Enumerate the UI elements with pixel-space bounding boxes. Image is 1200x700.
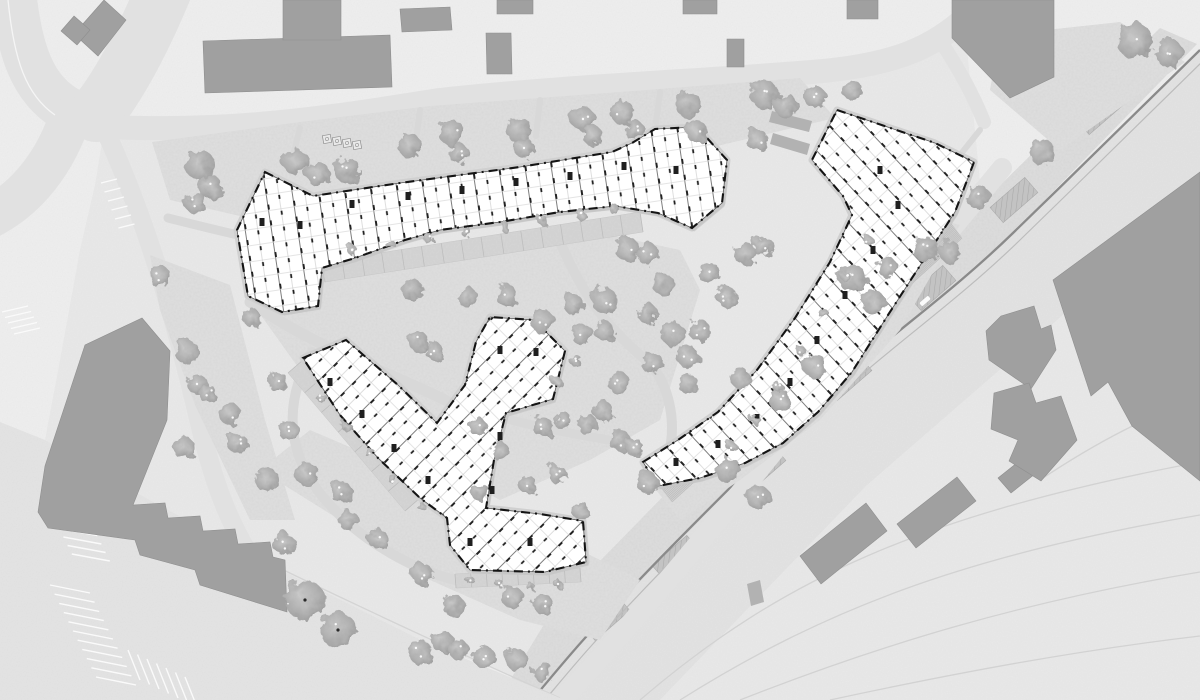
tree bbox=[273, 533, 295, 555]
tree bbox=[615, 237, 639, 261]
tree bbox=[227, 433, 247, 453]
shrub bbox=[727, 442, 737, 452]
tree bbox=[638, 304, 658, 324]
stair-core bbox=[716, 440, 721, 448]
tree bbox=[1155, 39, 1183, 67]
tree bbox=[675, 91, 701, 117]
tree bbox=[624, 120, 644, 140]
tree bbox=[408, 331, 428, 351]
tree bbox=[199, 385, 217, 403]
stair-core bbox=[498, 346, 503, 354]
tree bbox=[689, 320, 711, 342]
tree bbox=[283, 149, 309, 175]
tree bbox=[677, 346, 699, 368]
shrub bbox=[499, 221, 509, 231]
tree bbox=[401, 279, 423, 301]
shrub bbox=[365, 448, 375, 458]
tree bbox=[255, 468, 279, 492]
tree bbox=[715, 457, 741, 483]
tree bbox=[554, 412, 572, 430]
tree bbox=[548, 465, 566, 483]
tree bbox=[637, 243, 659, 265]
tree bbox=[563, 294, 583, 314]
tree bbox=[514, 138, 534, 158]
shrub bbox=[537, 215, 547, 225]
tree bbox=[173, 437, 195, 459]
tree bbox=[334, 157, 360, 183]
tree bbox=[425, 342, 443, 360]
tree bbox=[734, 243, 756, 265]
tree bbox=[175, 340, 199, 364]
stair-core bbox=[260, 218, 265, 226]
tree bbox=[571, 323, 593, 345]
shrub bbox=[554, 580, 562, 588]
tree bbox=[769, 389, 791, 411]
tree bbox=[804, 86, 826, 108]
stair-core bbox=[426, 476, 431, 484]
tree bbox=[519, 476, 537, 494]
stair-core bbox=[622, 162, 627, 170]
tree bbox=[457, 287, 477, 307]
site-plan bbox=[0, 0, 1200, 700]
shrub bbox=[750, 415, 760, 425]
tree bbox=[593, 401, 613, 421]
tree bbox=[185, 192, 207, 214]
tree bbox=[730, 368, 750, 388]
tree bbox=[803, 354, 827, 378]
tree bbox=[583, 126, 603, 146]
shrub bbox=[609, 204, 619, 214]
stair-core bbox=[360, 410, 365, 418]
tree bbox=[219, 403, 241, 425]
shrub bbox=[416, 501, 424, 509]
stair-core bbox=[896, 201, 901, 209]
tree bbox=[592, 288, 618, 314]
shrub bbox=[796, 346, 806, 356]
stair-core bbox=[568, 172, 573, 180]
context-building bbox=[203, 35, 392, 93]
stair-core bbox=[298, 221, 303, 229]
tree bbox=[571, 501, 589, 519]
tree bbox=[306, 162, 330, 186]
stair-core bbox=[674, 458, 679, 466]
tree bbox=[1029, 139, 1055, 165]
tree bbox=[268, 372, 288, 392]
tree bbox=[448, 639, 468, 659]
tree-trunk-dot bbox=[303, 598, 306, 601]
context-building bbox=[283, 0, 341, 40]
tree bbox=[471, 483, 489, 501]
tree bbox=[1117, 23, 1153, 59]
tree bbox=[753, 236, 773, 256]
shrub bbox=[841, 272, 851, 282]
tree bbox=[661, 322, 685, 346]
tree bbox=[411, 563, 433, 585]
stair-core bbox=[406, 192, 411, 200]
tree bbox=[149, 266, 171, 288]
tree bbox=[469, 418, 487, 436]
stair-core bbox=[460, 186, 465, 194]
stair-core bbox=[514, 178, 519, 186]
shrub bbox=[461, 227, 471, 237]
tree bbox=[330, 481, 352, 503]
footpath bbox=[656, 92, 660, 122]
tree bbox=[862, 291, 886, 315]
context-building bbox=[486, 33, 512, 74]
tree bbox=[699, 263, 721, 285]
tree bbox=[533, 662, 553, 682]
shrub bbox=[385, 239, 395, 249]
tree bbox=[491, 442, 509, 460]
stair-core bbox=[328, 378, 333, 386]
tree bbox=[439, 120, 465, 146]
shrub bbox=[863, 235, 873, 245]
tree bbox=[642, 353, 664, 375]
context-building bbox=[683, 0, 717, 14]
shrub bbox=[570, 355, 582, 367]
tree bbox=[842, 80, 862, 100]
tree bbox=[685, 120, 707, 142]
tree bbox=[652, 273, 674, 295]
tree bbox=[368, 529, 388, 549]
bike-rack bbox=[322, 134, 331, 143]
shrub bbox=[466, 576, 474, 584]
tree bbox=[577, 414, 597, 434]
site-plan-canvas bbox=[0, 0, 1200, 700]
tree bbox=[408, 640, 432, 664]
tree bbox=[610, 100, 634, 124]
shrub bbox=[819, 309, 829, 319]
shrub bbox=[317, 393, 327, 403]
context-building bbox=[727, 39, 744, 67]
tree bbox=[496, 285, 518, 307]
stair-core bbox=[392, 444, 397, 452]
tree bbox=[338, 510, 358, 530]
stair-core bbox=[788, 378, 793, 386]
tree bbox=[533, 594, 553, 614]
tree bbox=[442, 594, 464, 616]
shrub bbox=[347, 245, 357, 255]
tree bbox=[774, 94, 798, 118]
context-building bbox=[400, 7, 452, 32]
stair-core bbox=[815, 336, 820, 344]
shrub bbox=[773, 382, 783, 392]
shrub bbox=[526, 582, 534, 590]
tree bbox=[966, 185, 990, 209]
tree-trunk-dot bbox=[336, 628, 339, 631]
tree bbox=[913, 236, 939, 262]
stair-core bbox=[674, 166, 679, 174]
stair-core bbox=[878, 166, 883, 174]
shrub bbox=[496, 580, 504, 588]
shrub bbox=[551, 376, 561, 386]
tree bbox=[636, 471, 658, 493]
shrub bbox=[423, 233, 433, 243]
context-building bbox=[847, 0, 878, 19]
tree bbox=[609, 373, 631, 395]
stair-core bbox=[871, 246, 876, 254]
tree bbox=[594, 321, 614, 341]
tree bbox=[878, 258, 898, 278]
shrub bbox=[389, 475, 399, 485]
stair-core bbox=[534, 348, 539, 356]
tree bbox=[625, 438, 643, 456]
tree bbox=[295, 462, 319, 486]
tree bbox=[501, 586, 523, 608]
bike-rack bbox=[332, 136, 341, 145]
tree bbox=[717, 287, 737, 307]
tree bbox=[243, 309, 261, 327]
shrub bbox=[575, 209, 585, 219]
tree bbox=[531, 310, 555, 334]
tree bbox=[449, 144, 469, 164]
tree bbox=[473, 646, 495, 668]
tree bbox=[939, 241, 961, 263]
tree bbox=[533, 417, 553, 437]
stair-core bbox=[468, 538, 473, 546]
stair-core bbox=[843, 291, 848, 299]
tree bbox=[678, 374, 698, 394]
stair-core bbox=[490, 486, 495, 494]
bike-rack bbox=[342, 138, 351, 147]
tree bbox=[279, 421, 299, 441]
tree bbox=[506, 649, 528, 671]
stair-core bbox=[498, 432, 503, 440]
shrub bbox=[341, 421, 351, 431]
tree bbox=[746, 129, 768, 151]
tree bbox=[398, 134, 422, 158]
footpath bbox=[536, 100, 540, 136]
bike-rack bbox=[352, 140, 361, 149]
stair-core bbox=[528, 538, 533, 546]
context-building bbox=[497, 0, 533, 14]
stair-core bbox=[350, 200, 355, 208]
tree bbox=[746, 485, 770, 509]
